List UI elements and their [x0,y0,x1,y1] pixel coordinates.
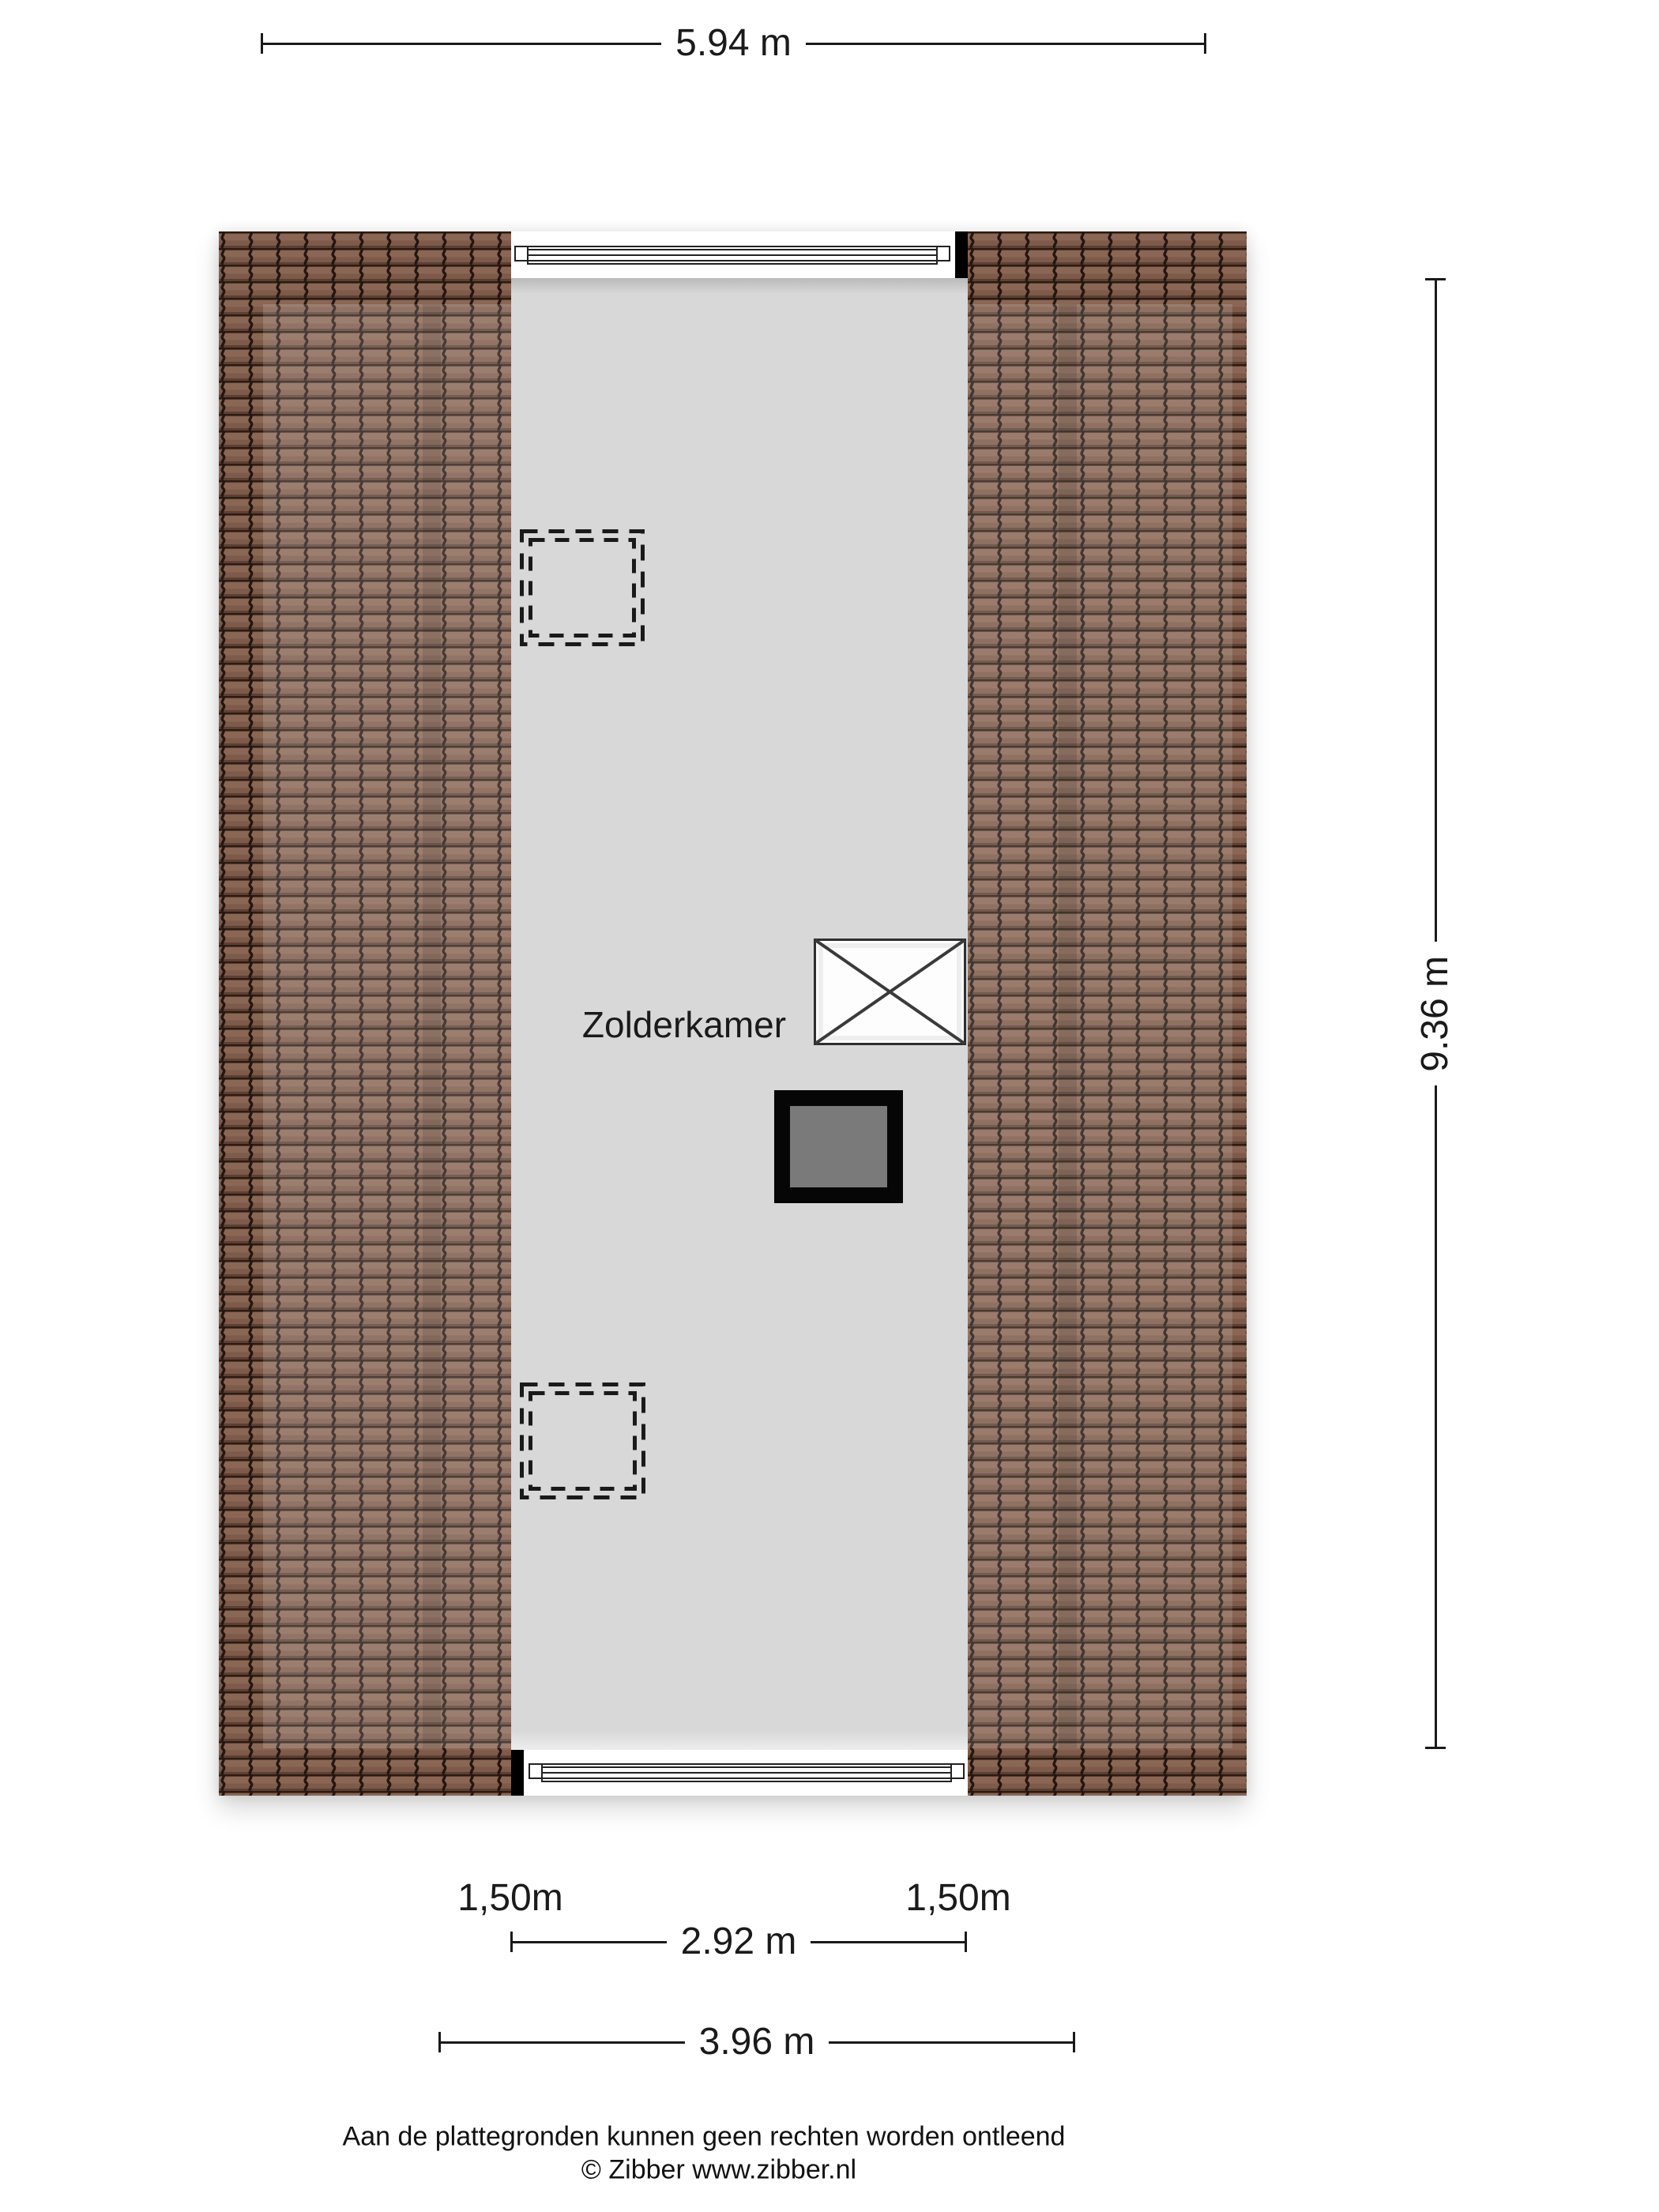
dimension-line [806,43,1204,45]
window-endcap [514,246,529,261]
dimension-line [513,1941,667,1943]
dimension-width-total-label: 5.94 m [661,24,806,62]
dimension-height-total: 9.36 m [1418,278,1453,1749]
dimension-tick [1073,2032,1075,2052]
dimension-width-outer: 3.96 m [438,2022,1075,2063]
dimension-width-inner-label: 2.92 m [667,1923,811,1961]
roof-tiles-left [219,231,511,1796]
window-wall-bottom [511,1750,968,1796]
window-endcap [950,1763,965,1779]
dimension-tick [965,1932,967,1952]
wall-stub [955,231,968,278]
window-symbol-bottom [541,1763,952,1782]
dimension-width-outer-label: 3.96 m [685,2023,829,2061]
wall-stub [511,1750,524,1796]
dimension-line [811,1941,965,1943]
crossed-opening-symbol [814,939,966,1045]
dashed-skylight-outline-bottom [520,1382,645,1499]
footer-credit: © Zibber www.zibber.nl [581,2154,856,2187]
window-wall-top [511,231,968,278]
footer-disclaimer: Aan de plattegronden kunnen geen rechten… [343,2121,1066,2154]
dimension-line [263,43,661,45]
dimension-width-total: 5.94 m [261,23,1206,64]
roof-tile-pattern [968,231,1247,1796]
chimney-symbol [774,1090,903,1203]
dimension-line [829,2041,1073,2044]
dimension-tick [1425,1747,1446,1749]
headroom-label-right: 1,50m [905,1879,1010,1917]
window-symbol-top [527,246,938,265]
roof-tiles-right [968,231,1247,1796]
dimension-line [441,2041,685,2044]
dimension-line [1435,1085,1437,1747]
dimension-width-inner: 2.92 m [510,1921,967,1962]
window-endcap [936,246,950,261]
roof-tile-pattern [219,231,511,1796]
window-endcap [529,1763,543,1779]
dashed-skylight-outline-top [520,529,645,646]
dimension-height-total-label: 9.36 m [1416,942,1454,1086]
dimension-tick [1204,33,1206,54]
room-label: Zolderkamer [582,1006,786,1043]
dimension-line [1435,280,1437,942]
floorplan-page: 5.94 m 9.36 m [0,0,1659,2212]
headroom-label-left: 1,50m [457,1879,562,1917]
